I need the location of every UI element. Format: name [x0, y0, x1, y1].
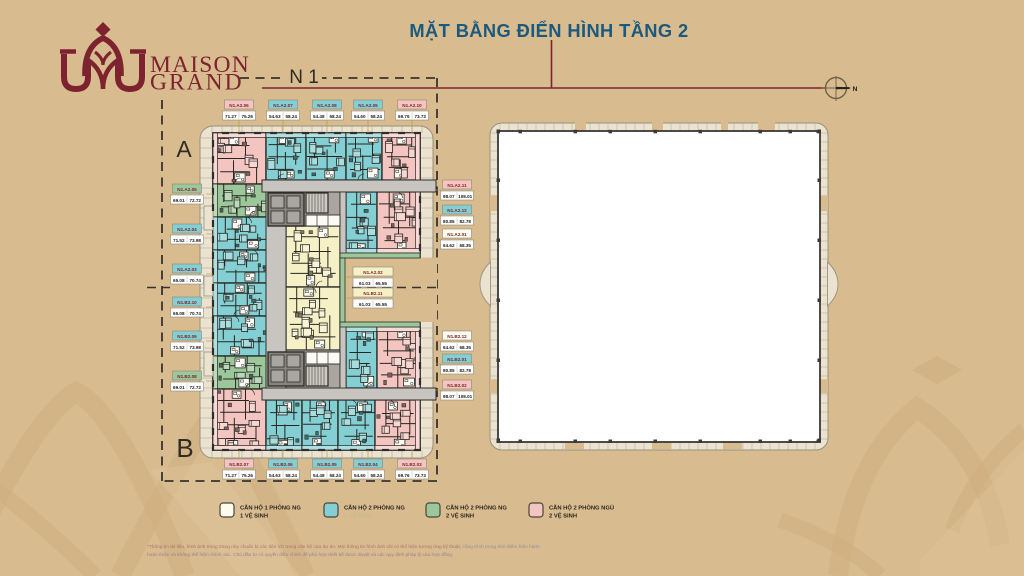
svg-text:71.27: 71.27 — [225, 473, 237, 478]
svg-text:54.63: 54.63 — [269, 114, 281, 119]
svg-text:71.52: 71.52 — [173, 345, 185, 350]
svg-text:58.24: 58.24 — [329, 473, 341, 478]
svg-text:108.01: 108.01 — [458, 194, 472, 199]
svg-text:69.76: 69.76 — [398, 473, 410, 478]
svg-text:73.73: 73.73 — [414, 473, 426, 478]
svg-text:2 VỆ SINH: 2 VỆ SINH — [549, 512, 577, 520]
svg-text:N1.A2.10: N1.A2.10 — [402, 103, 422, 108]
svg-text:70.74: 70.74 — [189, 278, 201, 283]
svg-text:N1.B2.04: N1.B2.04 — [358, 462, 378, 467]
svg-text:N1.A2.06: N1.A2.06 — [229, 103, 249, 108]
svg-text:80.85: 80.85 — [443, 219, 455, 224]
svg-text:N1.A2.11: N1.A2.11 — [447, 183, 467, 188]
svg-text:75.26: 75.26 — [241, 473, 253, 478]
svg-text:N1.B2.03: N1.B2.03 — [402, 462, 422, 467]
svg-text:58.24: 58.24 — [329, 114, 341, 119]
svg-text:N1.A2.07: N1.A2.07 — [273, 103, 293, 108]
svg-text:82.78: 82.78 — [459, 219, 471, 224]
svg-text:65.08: 65.08 — [173, 278, 185, 283]
svg-text:N1.B2.12: N1.B2.12 — [447, 334, 467, 339]
svg-text:N1.B2.07: N1.B2.07 — [229, 462, 249, 467]
svg-text:68.35: 68.35 — [459, 345, 471, 350]
svg-text:61.03: 61.03 — [359, 302, 371, 307]
svg-text:N1.A2.12: N1.A2.12 — [447, 208, 467, 213]
svg-text:N1.A2.02: N1.A2.02 — [363, 270, 383, 275]
svg-text:61.03: 61.03 — [359, 281, 371, 286]
svg-text:N1.A2.01: N1.A2.01 — [447, 232, 467, 237]
svg-text:73.73: 73.73 — [414, 114, 426, 119]
svg-text:73.98: 73.98 — [189, 345, 201, 350]
svg-text:N1.A2.05: N1.A2.05 — [177, 187, 197, 192]
svg-text:N1.B2.01: N1.B2.01 — [447, 357, 467, 362]
svg-text:98.07: 98.07 — [443, 394, 455, 399]
svg-text:N1.B2.11: N1.B2.11 — [363, 291, 383, 296]
svg-text:75.26: 75.26 — [241, 114, 253, 119]
svg-text:72.72: 72.72 — [189, 385, 201, 390]
svg-text:N1.A2.04: N1.A2.04 — [177, 227, 197, 232]
svg-text:108.01: 108.01 — [458, 394, 472, 399]
svg-text:N1.B2.06: N1.B2.06 — [273, 462, 293, 467]
svg-text:N1.B2.02: N1.B2.02 — [447, 383, 467, 388]
svg-text:1 VỆ SINH: 1 VỆ SINH — [344, 512, 372, 520]
svg-text:N1.B2.09: N1.B2.09 — [177, 334, 197, 339]
svg-text:71.52: 71.52 — [173, 238, 185, 243]
svg-text:65.08: 65.08 — [173, 311, 185, 316]
svg-text:N 1: N 1 — [289, 67, 319, 88]
svg-text:71.27: 71.27 — [225, 114, 237, 119]
svg-text:1 VỆ SINH: 1 VỆ SINH — [240, 512, 268, 520]
svg-text:65.55: 65.55 — [375, 302, 387, 307]
svg-text:73.98: 73.98 — [189, 238, 201, 243]
svg-text:54.60: 54.60 — [354, 114, 366, 119]
svg-text:58.24: 58.24 — [370, 473, 382, 478]
svg-text:54.63: 54.63 — [269, 473, 281, 478]
svg-text:69.01: 69.01 — [173, 385, 185, 390]
svg-text:CĂN HỘ 2 PHÒNG NG: CĂN HỘ 2 PHÒNG NG — [344, 504, 405, 512]
svg-text:98.07: 98.07 — [443, 194, 455, 199]
svg-text:58.24: 58.24 — [370, 114, 382, 119]
svg-text:N: N — [853, 86, 858, 93]
svg-text:69.01: 69.01 — [173, 198, 185, 203]
svg-text:68.35: 68.35 — [459, 243, 471, 248]
svg-text:72.72: 72.72 — [189, 198, 201, 203]
svg-text:MẶT BẰNG ĐIỂN HÌNH TẦNG 2: MẶT BẰNG ĐIỂN HÌNH TẦNG 2 — [409, 20, 688, 41]
svg-text:80.85: 80.85 — [443, 368, 455, 373]
svg-text:N1.A2.03: N1.A2.03 — [177, 267, 197, 272]
svg-text:N1.B2.10: N1.B2.10 — [177, 300, 197, 305]
svg-text:65.55: 65.55 — [375, 281, 387, 286]
svg-text:2 VỆ SINH: 2 VỆ SINH — [446, 512, 474, 520]
svg-text:58.24: 58.24 — [285, 114, 297, 119]
svg-text:hoàn thiện và không thể hiện c: hoàn thiện và không thể hiện chính xác. … — [147, 551, 453, 558]
svg-text:54.60: 54.60 — [354, 473, 366, 478]
svg-text:A: A — [176, 136, 192, 162]
svg-text:58.24: 58.24 — [285, 473, 297, 478]
svg-text:N1.A2.09: N1.A2.09 — [358, 103, 378, 108]
svg-text:N1.A2.08: N1.A2.08 — [317, 103, 337, 108]
svg-text:CĂN HỘ 2 PHÒNG NGỦ: CĂN HỘ 2 PHÒNG NGỦ — [549, 504, 614, 512]
svg-text:B: B — [176, 433, 193, 463]
svg-text:64.62: 64.62 — [443, 243, 455, 248]
svg-text:82.78: 82.78 — [459, 368, 471, 373]
svg-text:CĂN HỘ 2 PHÒNG NG: CĂN HỘ 2 PHÒNG NG — [446, 504, 507, 512]
svg-text:CĂN HỘ 1 PHÒNG NG: CĂN HỘ 1 PHÒNG NG — [240, 504, 301, 512]
svg-text:70.74: 70.74 — [189, 311, 201, 316]
svg-text:69.76: 69.76 — [398, 114, 410, 119]
svg-text:N1.B2.05: N1.B2.05 — [317, 462, 337, 467]
svg-text:54.48: 54.48 — [313, 114, 325, 119]
svg-text:*Thông tin tài liệu, hình ảnh: *Thông tin tài liệu, hình ảnh trong tran… — [147, 543, 540, 550]
svg-text:54.48: 54.48 — [313, 473, 325, 478]
svg-text:GRAND: GRAND — [150, 70, 244, 96]
svg-text:N1.B2.08: N1.B2.08 — [177, 374, 197, 379]
svg-text:64.62: 64.62 — [443, 345, 455, 350]
